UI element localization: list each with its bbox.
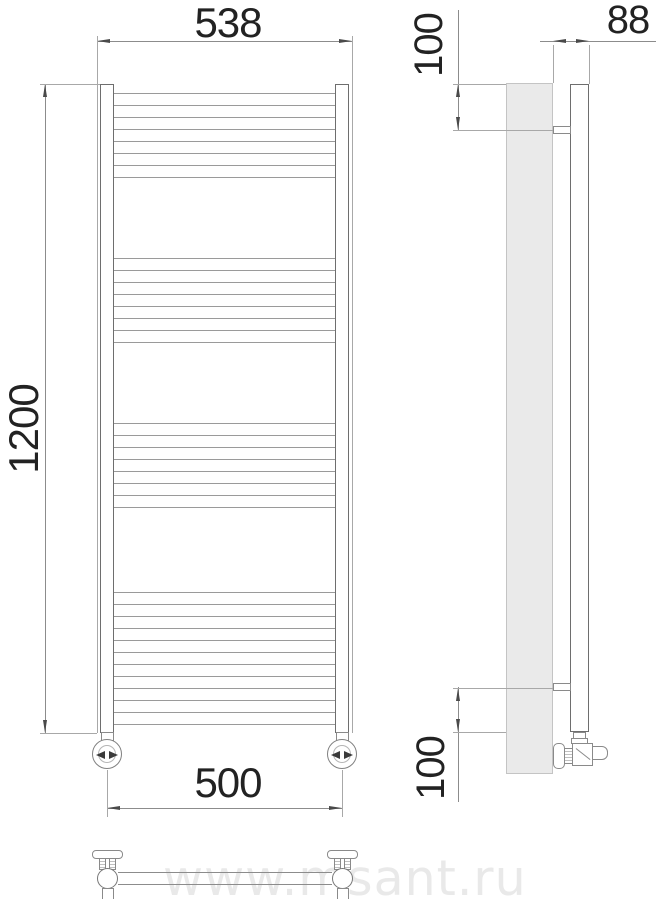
arrow-up bbox=[456, 688, 460, 701]
mount-circle bbox=[97, 868, 118, 889]
rung-line bbox=[114, 129, 335, 130]
valve-spindle-left bbox=[96, 751, 105, 759]
rung-line bbox=[114, 423, 335, 424]
witness-right bbox=[589, 45, 590, 84]
rung-line bbox=[114, 294, 335, 295]
witness-right bbox=[342, 770, 343, 817]
arrow-left bbox=[97, 39, 110, 43]
rung-line bbox=[114, 165, 335, 166]
witness-bottom bbox=[40, 733, 97, 734]
rung-line bbox=[114, 495, 335, 496]
rung-line bbox=[114, 282, 335, 283]
bracket-bottom bbox=[553, 683, 571, 691]
rung-line bbox=[114, 318, 335, 319]
arrow-right bbox=[339, 39, 352, 43]
dim-line bbox=[458, 10, 459, 131]
arrow-right bbox=[576, 39, 589, 43]
dim-label-100-bottom: 100 bbox=[411, 718, 451, 818]
technical-drawing: www.msant.ru 538 bbox=[0, 0, 657, 900]
dim-label-1200: 1200 bbox=[3, 369, 45, 489]
rung-line bbox=[114, 664, 335, 665]
rung-line bbox=[114, 306, 335, 307]
rung-line bbox=[114, 459, 335, 460]
wall-section bbox=[506, 83, 553, 774]
tube-bottom-edge bbox=[118, 884, 332, 885]
arrow-down bbox=[456, 117, 460, 130]
rung-line bbox=[114, 153, 335, 154]
witness-top bbox=[453, 688, 553, 689]
rung-line bbox=[114, 724, 335, 725]
rung-line bbox=[114, 471, 335, 472]
bracket-top bbox=[553, 126, 571, 134]
collector-tube-right bbox=[335, 84, 349, 733]
witness-top bbox=[453, 84, 506, 85]
dim-label-500: 500 bbox=[168, 762, 288, 804]
rung-line bbox=[114, 652, 335, 653]
witness-left bbox=[553, 45, 554, 83]
witness-line-right bbox=[352, 36, 353, 733]
wall-plate bbox=[327, 850, 358, 859]
mount-stem bbox=[102, 888, 114, 899]
rung-line bbox=[114, 258, 335, 259]
collector-tube-left bbox=[100, 84, 114, 733]
rung-line bbox=[114, 141, 335, 142]
wall-plate bbox=[92, 850, 123, 859]
witness-top bbox=[40, 84, 100, 85]
dim-line bbox=[45, 84, 46, 733]
mount-circle bbox=[332, 868, 353, 889]
dim-label-88: 88 bbox=[578, 0, 657, 40]
rung-line bbox=[114, 640, 335, 641]
arrow-up bbox=[43, 84, 47, 97]
rung-line bbox=[114, 712, 335, 713]
rung-line bbox=[114, 628, 335, 629]
rung-line bbox=[114, 177, 335, 178]
arrow-left bbox=[107, 806, 120, 810]
rung-line bbox=[114, 117, 335, 118]
arrow-right bbox=[329, 806, 342, 810]
arrow-left bbox=[553, 39, 566, 43]
side-tube bbox=[570, 84, 589, 732]
valve-spindle-right bbox=[109, 751, 118, 759]
rung-line bbox=[114, 93, 335, 94]
rung-line bbox=[114, 700, 335, 701]
rung-line bbox=[114, 483, 335, 484]
rung-line bbox=[114, 447, 335, 448]
rung-line bbox=[114, 330, 335, 331]
tube-top-edge bbox=[118, 872, 332, 873]
arrow-up bbox=[456, 84, 460, 97]
arrow-down bbox=[456, 719, 460, 732]
rung-line bbox=[114, 435, 335, 436]
rung-line bbox=[114, 688, 335, 689]
witness-left bbox=[107, 770, 108, 817]
dim-label-538: 538 bbox=[168, 2, 288, 44]
arrow-down bbox=[43, 720, 47, 733]
rung-line bbox=[114, 270, 335, 271]
dim-line bbox=[107, 808, 342, 809]
rung-line bbox=[114, 342, 335, 343]
rung-line bbox=[114, 676, 335, 677]
witness-line-left bbox=[97, 36, 98, 733]
witness-bottom bbox=[453, 130, 553, 131]
dim-label-100-top: 100 bbox=[409, 0, 449, 95]
valve-handle bbox=[592, 746, 608, 760]
rung-line bbox=[114, 592, 335, 593]
mount-stem bbox=[337, 888, 349, 899]
dim-line bbox=[458, 687, 459, 802]
rung-line bbox=[114, 604, 335, 605]
rung-line bbox=[114, 616, 335, 617]
rung-line bbox=[114, 105, 335, 106]
valve-spindle-right bbox=[344, 751, 353, 759]
rung-line bbox=[114, 507, 335, 508]
dim-line bbox=[97, 41, 352, 42]
witness-bottom bbox=[453, 732, 506, 733]
valve-spindle-left bbox=[331, 751, 340, 759]
